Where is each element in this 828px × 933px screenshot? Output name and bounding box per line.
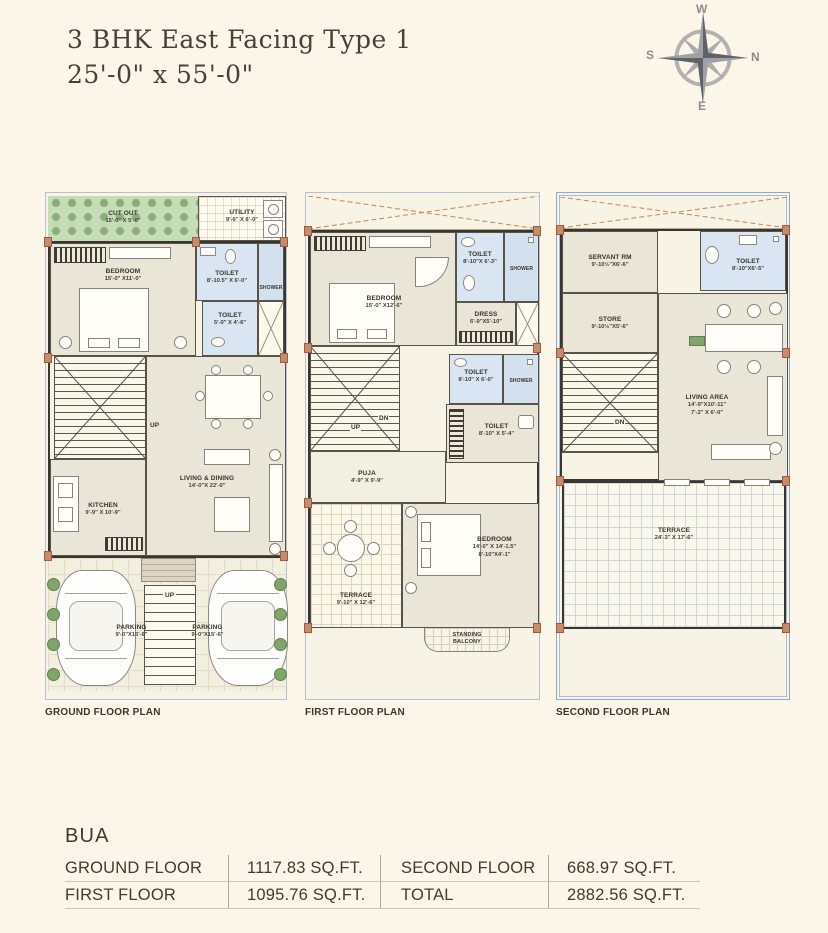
column-marker: [533, 623, 541, 633]
bua-row1-value2: 668.97 SQ.FT.: [548, 855, 700, 882]
sink-accent-icon: [689, 336, 705, 346]
pillow-icon: [421, 522, 431, 542]
chair-icon: [211, 365, 221, 375]
x-hatch-icon: [259, 302, 283, 355]
second-floor-caption: SECOND FLOOR PLAN: [556, 707, 670, 718]
column-marker: [782, 623, 790, 633]
bua-row1-label2: SECOND FLOOR: [380, 855, 548, 882]
room-toilet1-ground: TOILET 8'-10.5" X 6'-0": [196, 243, 258, 301]
chair-icon: [243, 419, 253, 429]
room-living-dining: LIVING & DINING 14'-0"X 22'-0": [146, 356, 286, 556]
bed-icon: [329, 283, 395, 343]
toilet-fixture-icon: [211, 337, 225, 347]
room-bedroom1-first: BEDROOM 15'-0" X12'-6": [310, 232, 456, 346]
stairs-cross-icon: [311, 347, 399, 450]
room-toilet3-first: TOILET 8'-10" X 5'-4": [446, 404, 539, 463]
column-marker: [44, 551, 52, 561]
pillow-icon: [88, 338, 110, 348]
column-marker: [556, 348, 564, 358]
compass-north-label: N: [751, 50, 760, 64]
room-label: LIVING AREA 14'-9"X10'-11" 7'-2" X 6'-0": [627, 394, 787, 417]
room-terrace-second: TERRACE 24'-3" X 17'-6": [562, 481, 786, 629]
first-floor-plan: BEDROOM 15'-0" X12'-6" TOILET 8'-10"X 6'…: [305, 192, 540, 700]
parking-label-right: PARKING 9'-0"X15'-6": [129, 624, 286, 640]
chair-icon: [344, 520, 357, 533]
room-toilet1-first: TOILET 8'-10"X 6'-3": [456, 232, 504, 302]
plot-dimensions: 25'-0" x 55'-0": [67, 57, 412, 92]
fan-icon: [769, 302, 782, 315]
column-marker: [280, 353, 288, 363]
toilet-fixture-icon: [463, 275, 475, 291]
wardrobe-icon: [314, 236, 366, 251]
bua-title: BUA: [65, 825, 110, 848]
room-label: UTILITY 9'-6" X 6'-0": [199, 209, 285, 225]
room-label: LIVING & DINING 14'-0"X 22'-0": [129, 475, 285, 491]
x-hatch-icon: [517, 303, 538, 345]
plant-icon: [47, 608, 60, 621]
room-bedroom2-first: BEDROOM 14'-0" X 14'-1.5" 8'-10"X4'-1": [402, 503, 539, 628]
fan-icon: [269, 449, 281, 461]
chair-icon: [367, 542, 380, 555]
shelf-icon: [369, 236, 431, 248]
nightstand-icon: [59, 336, 72, 349]
ground-floor-caption: GROUND FLOOR PLAN: [45, 707, 161, 718]
bar-counter-icon: [705, 324, 783, 352]
compass-south-label: S: [646, 48, 654, 62]
room-label: SHOWER: [259, 284, 283, 292]
wardrobe-icon: [54, 247, 106, 263]
bua-row2-label2: TOTAL: [380, 882, 548, 909]
dining-table-icon: [205, 375, 261, 419]
plant-icon: [274, 608, 287, 621]
room-dress: DRESS 6'-0"X5'-10": [456, 302, 516, 346]
room-shower-ground: SHOWER: [258, 243, 284, 301]
stove-counter-icon: [105, 537, 143, 551]
stairs-up-label: UP: [150, 422, 159, 429]
fan-icon: [405, 506, 417, 518]
dashed-cross-icon: [560, 197, 788, 228]
room-label: TOILET 5'-0" X 4'-6": [203, 312, 257, 328]
column-marker: [304, 623, 312, 633]
bua-row1-label1: GROUND FLOOR: [65, 855, 228, 882]
plant-icon: [47, 668, 60, 681]
column-marker: [556, 623, 564, 633]
window-icon: [704, 479, 730, 486]
rear-window-line: [217, 658, 279, 659]
column-marker: [304, 343, 312, 353]
stairs-dn-label: DN: [614, 419, 625, 426]
fan-icon: [405, 582, 417, 594]
column-marker: [44, 353, 52, 363]
pillow-icon: [367, 329, 387, 339]
chair-icon: [211, 419, 221, 429]
fan-icon: [769, 442, 782, 455]
room-label: SERVANT RM 9'-10½"X6'-6": [563, 254, 657, 270]
shower-head-icon: [527, 359, 533, 365]
shower-head-icon: [528, 237, 534, 243]
room-puja: PUJA 4'-9" X 9'-9": [310, 451, 446, 503]
room-label: SHOWER: [504, 377, 538, 385]
stool-icon: [717, 360, 731, 374]
window-icon: [664, 479, 690, 486]
open-cutout-strip: [308, 196, 539, 230]
room-label: KITCHEN 9'-9" X 10'-9": [61, 502, 145, 518]
room-label: TOILET 8'-10"X 6'-3": [457, 251, 503, 267]
room-label: TOILET 8'-10"X6'-5": [711, 258, 785, 274]
pillow-icon: [337, 329, 357, 339]
ground-floor-plan: CUT OUT 15'-0" X 5'-0" UTILITY 9'-6" X 6…: [45, 192, 287, 700]
windshield-line: [65, 593, 127, 594]
closet: [258, 301, 284, 356]
room-label: PUJA 4'-9" X 9'-9": [289, 470, 445, 486]
chair-icon: [243, 365, 253, 375]
room-label: CUT OUT 15'-0" X 5'-0": [48, 210, 198, 226]
plant-icon: [274, 638, 287, 651]
second-floor-plan: SERVANT RM 9'-10½"X6'-6" STORE 9'-10½"X5…: [556, 192, 790, 700]
column-marker: [280, 237, 288, 247]
column-marker: [782, 348, 790, 358]
coffee-table-icon: [214, 497, 250, 532]
column-marker: [304, 498, 312, 508]
chair-icon: [323, 542, 336, 555]
stool-icon: [747, 360, 761, 374]
room-label: TOILET 8'-10" X 6'-0": [450, 369, 502, 385]
column-marker: [782, 225, 790, 235]
chair-icon: [263, 391, 273, 401]
page-title: 3 BHK East Facing Type 1: [67, 22, 412, 57]
room-label: TOILET 8'-10.5" X 6'-0": [197, 270, 257, 286]
chair-icon: [195, 391, 205, 401]
patio-table-icon: [337, 534, 365, 562]
stairs-cross-icon: [55, 357, 145, 458]
room-label: STANDING BALCONY: [425, 632, 509, 646]
shelf-icon: [109, 247, 171, 259]
room-shower1-first: SHOWER: [504, 232, 539, 302]
stool-icon: [747, 304, 761, 318]
bua-row2-value2: 2882.56 SQ.FT.: [548, 882, 700, 909]
standing-balcony: STANDING BALCONY: [424, 628, 510, 652]
pillow-icon: [118, 338, 140, 348]
closet: [516, 302, 539, 346]
room-label: BEDROOM 15'-0" X12'-6": [313, 295, 455, 311]
page-title-block: 3 BHK East Facing Type 1 25'-0" x 55'-0": [67, 22, 412, 92]
wardrobe-icon: [459, 331, 513, 343]
column-marker: [304, 226, 312, 236]
parking-area: PARKING 9'-0"X15'-6" PARKING 9'-0"X15'-6…: [48, 556, 286, 691]
sink-icon: [200, 247, 216, 256]
room-kitchen: KITCHEN 9'-9" X 10'-9": [50, 459, 146, 556]
sink-icon: [739, 235, 757, 245]
nightstand-icon: [174, 336, 187, 349]
room-label: STORE 9'-10½"X5'-6": [563, 316, 657, 332]
column-marker: [192, 237, 200, 247]
room-shower2-first: SHOWER: [503, 354, 539, 404]
plant-icon: [47, 638, 60, 651]
bed-icon: [79, 288, 149, 352]
sink-icon: [454, 358, 467, 367]
open-cutout-strip: [560, 197, 788, 229]
bua-row2-label1: FIRST FLOOR: [65, 882, 228, 909]
pillow-icon: [421, 548, 431, 568]
shower-head-icon: [773, 236, 779, 242]
room-toilet-second: TOILET 8'-10"X6'-5": [700, 231, 786, 291]
stool-icon: [717, 304, 731, 318]
entry-steps-icon: [141, 558, 196, 582]
column-marker: [782, 476, 790, 486]
room-label: SHOWER: [505, 265, 538, 273]
toilet-fixture-icon: [225, 249, 236, 264]
room-terrace-first: TERRACE 9'-10" X 12'-6": [310, 503, 402, 628]
chair-icon: [344, 564, 357, 577]
compass-west-label: W: [696, 2, 707, 16]
compass-east-label: E: [698, 99, 706, 113]
bua-table: GROUND FLOOR 1117.83 SQ.FT. SECOND FLOOR…: [65, 855, 700, 909]
room-label: TERRACE 9'-10" X 12'-6": [311, 592, 401, 608]
stairs-up-label: UP: [350, 424, 361, 431]
room-bedroom-ground: BEDROOM 15'-0" X11'-0": [50, 243, 196, 356]
column-marker: [533, 226, 541, 236]
compass-rose: W N E S: [642, 0, 764, 118]
bathtub-icon: [415, 257, 449, 287]
room-label: TOILET 8'-10" X 5'-4": [455, 423, 538, 439]
column-marker: [44, 237, 52, 247]
room-label: TERRACE 24'-3" X 17'-6": [564, 527, 784, 543]
room-cut-out: CUT OUT 15'-0" X 5'-0": [48, 196, 198, 241]
window-icon: [744, 479, 770, 486]
plant-icon: [274, 578, 287, 591]
bua-row2-value1: 1095.76 SQ.FT.: [228, 882, 380, 909]
room-utility: UTILITY 9'-6" X 6'-0": [198, 196, 286, 241]
room-store: STORE 9'-10½"X5'-6": [562, 293, 658, 353]
column-marker: [556, 476, 564, 486]
bua-row1-value1: 1117.83 SQ.FT.: [228, 855, 380, 882]
room-living-area: LIVING AREA 14'-9"X10'-11" 7'-2" X 6'-0": [658, 293, 788, 481]
room-label: DRESS 6'-0"X5'-10": [457, 311, 515, 327]
stairs-dn-label: DN: [378, 415, 389, 422]
dashed-cross-icon: [308, 196, 539, 229]
stairs-icon: [54, 356, 146, 459]
plant-icon: [47, 578, 60, 591]
rear-window-line: [65, 658, 127, 659]
column-marker: [533, 343, 541, 353]
windshield-line: [217, 593, 279, 594]
sofa-icon: [204, 449, 250, 465]
entry-up-label: UP: [163, 592, 176, 599]
tv-console-icon: [711, 444, 771, 460]
first-floor-caption: FIRST FLOOR PLAN: [305, 707, 405, 718]
room-toilet2-first: TOILET 8'-10" X 6'-0": [449, 354, 503, 404]
column-marker: [280, 551, 288, 561]
room-servant: SERVANT RM 9'-10½"X6'-6": [562, 231, 658, 293]
plant-icon: [274, 668, 287, 681]
room-label: BEDROOM 14'-0" X 14'-1.5" 8'-10"X4'-1": [451, 536, 538, 559]
sink-icon: [461, 237, 475, 247]
room-label: BEDROOM 15'-0" X11'-0": [51, 268, 195, 284]
stairs-icon: [310, 346, 400, 451]
column-marker: [556, 225, 564, 235]
room-toilet2-ground: TOILET 5'-0" X 4'-6": [202, 301, 258, 356]
